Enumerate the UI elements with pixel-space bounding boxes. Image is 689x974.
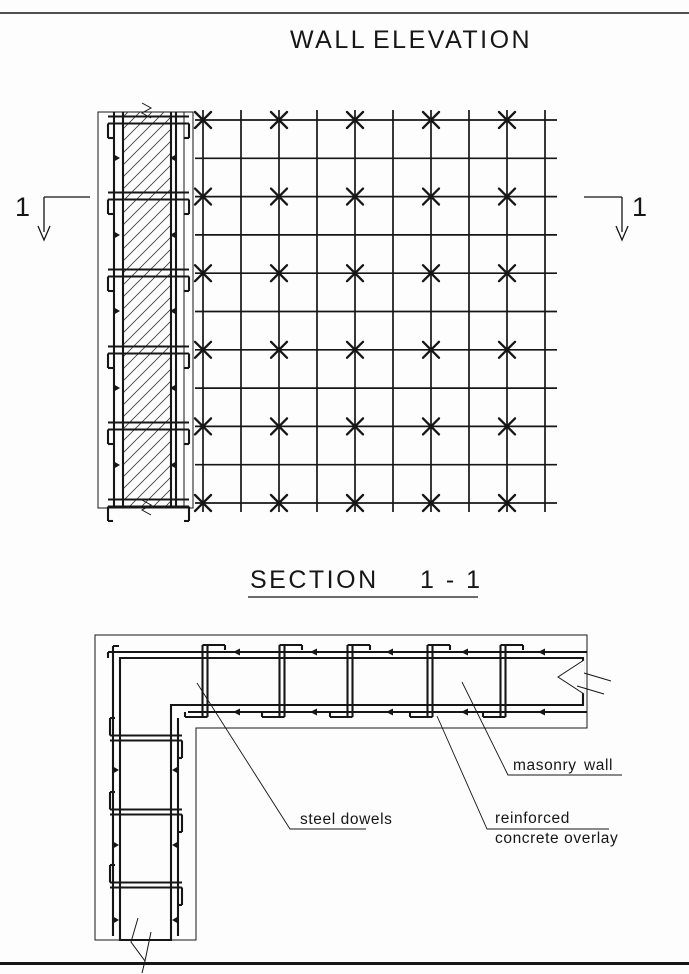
label-masonry-wall: masonry wall (513, 757, 613, 774)
section-title: SECTION 1 - 1 (250, 566, 483, 594)
label-masonry-word1: masonry (513, 757, 577, 774)
wire-tick (386, 649, 393, 656)
wall-strip-side-view (98, 103, 193, 521)
cut-marker-number: 1 (632, 192, 647, 222)
elevation-title-word1: WALL (290, 26, 366, 54)
wire-tick (113, 917, 119, 924)
section-cut-marker-left: 1 (15, 192, 90, 240)
cut-marker-number: 1 (15, 192, 30, 222)
wire-tick (172, 917, 178, 924)
elevation-title-word2: ELEVATION (373, 26, 532, 54)
wire-tick (113, 767, 119, 774)
wire-tick (114, 232, 120, 239)
wire-tick (114, 385, 120, 392)
section-title-number: 1 - 1 (420, 566, 483, 594)
elevation-title: WALL ELEVATION (290, 26, 532, 54)
label-overlay-line1: reinforced (495, 810, 570, 827)
overlay-outline (95, 635, 587, 940)
label-steel-dowels: steel dowels (300, 811, 393, 828)
wire-tick (461, 709, 468, 716)
wire-tick (114, 462, 120, 469)
masonry-hatch (123, 112, 171, 508)
technical-drawing: WALL ELEVATION 1 1 (0, 0, 689, 974)
wire-tick (233, 709, 240, 716)
wire-tick (310, 709, 317, 716)
drawing-sheet: WALL ELEVATION 1 1 (0, 0, 689, 974)
wire-tick (386, 709, 393, 716)
wire-tick (461, 649, 468, 656)
wire-tick (172, 842, 178, 849)
cut-line (44, 197, 90, 232)
label-masonry-word2: wall (583, 757, 613, 774)
break-wipe (558, 660, 584, 694)
wire-tick (233, 649, 240, 656)
section-title-word: SECTION (250, 566, 379, 594)
wire-tick (310, 649, 317, 656)
wire-tick (114, 155, 120, 162)
wire-tick (172, 767, 178, 774)
wire-tick (538, 649, 545, 656)
mesh-grid (195, 110, 557, 512)
wire-tick (113, 842, 119, 849)
elevation-view: WALL ELEVATION 1 1 (15, 26, 647, 521)
label-overlay-line2: concrete overlay (495, 830, 618, 847)
section-cut-marker-right: 1 (584, 192, 647, 240)
wire-tick (114, 308, 120, 315)
wire-tick (538, 709, 545, 716)
section-view: SECTION 1 - 1 steel dowels (95, 566, 622, 973)
